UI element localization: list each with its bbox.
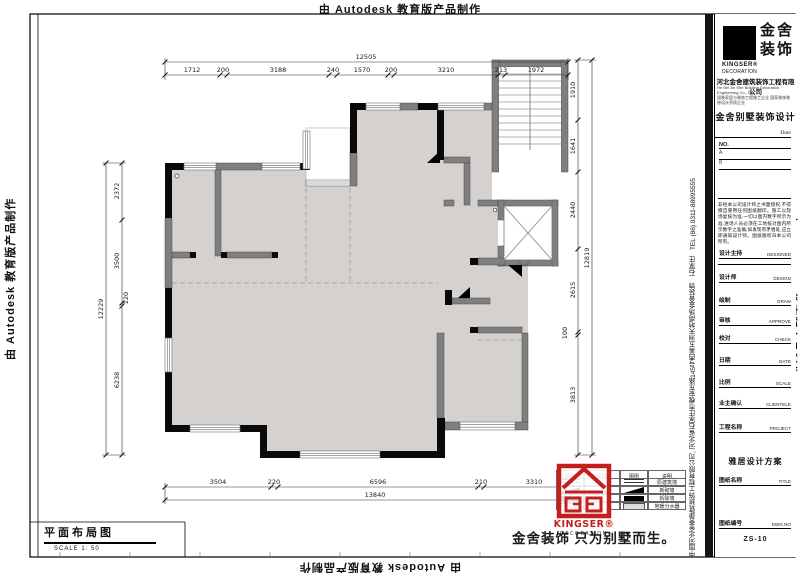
- cutout-void: [306, 128, 350, 186]
- row-designer: 设计师 DESIGN: [719, 271, 791, 283]
- side-address-strip: 中国河北金舍建筑装饰工程有限公司, 河北省石家庄市槐安东路145号西美五洲天地商…: [686, 14, 702, 557]
- row-en: DATE: [779, 359, 791, 364]
- date-label: Date: [715, 130, 791, 138]
- svg-text:200: 200: [385, 66, 397, 74]
- svg-text:1570: 1570: [354, 66, 371, 74]
- svg-text:1641: 1641: [569, 138, 577, 155]
- row-date: 日期 DATE: [719, 354, 791, 366]
- svg-text:3188: 3188: [270, 66, 287, 74]
- titleblock: 金舍 装饰 KINGSER® DECORATION 河北金舍建筑装饰工程有限公司…: [714, 14, 796, 557]
- svg-text:200: 200: [217, 66, 229, 74]
- row-title: 图纸名称 TITLE: [719, 474, 791, 486]
- svg-text:120: 120: [122, 292, 130, 304]
- logo-cn-line2: 装饰: [760, 41, 794, 60]
- row-label: 业主确认: [719, 398, 742, 407]
- logo-cn-line1: 金舍: [760, 22, 794, 41]
- row-en: TITLE: [778, 479, 791, 484]
- plan-title-underline: [44, 542, 156, 544]
- company-details: He Bei Jin She Building Decoration Engin…: [717, 85, 793, 105]
- row-label: 比例: [719, 377, 731, 386]
- svg-text:220: 220: [268, 478, 280, 486]
- legend-label: 新砌墙: [648, 486, 686, 494]
- svg-text:210: 210: [475, 478, 487, 486]
- company-name-en: He Bei Jin She Building Decoration Engin…: [717, 85, 793, 95]
- no-row: A: [719, 150, 791, 160]
- svg-text:3500: 3500: [113, 253, 121, 270]
- row-label: 设计主持: [719, 248, 742, 257]
- logo-brand-sub: DECORATION: [722, 69, 757, 75]
- svg-text:2372: 2372: [113, 183, 121, 200]
- row-check: 校对 CHECK: [719, 332, 791, 344]
- row-en: APPROVE: [769, 319, 791, 324]
- seal-brand: KINGSER®: [554, 519, 615, 530]
- row-en: SCALE: [776, 381, 791, 386]
- svg-text:12229: 12229: [97, 299, 105, 320]
- row-designed: 设计主持 DESIGNED: [719, 247, 791, 259]
- legend-symbol: [620, 502, 648, 510]
- project-type: 金舍别墅装饰设计: [715, 110, 796, 123]
- no-row: B: [719, 160, 791, 170]
- logo-wordmark: 金舍 装饰: [760, 22, 794, 60]
- staircase: [499, 67, 561, 172]
- svg-text:240: 240: [327, 66, 339, 74]
- row-label: 工程名称: [719, 422, 742, 431]
- dwg-number: ZS-10: [715, 536, 796, 543]
- seal-brand-sub: DECORATION: [560, 531, 608, 537]
- svg-text:13840: 13840: [365, 491, 386, 499]
- row-label: 审核: [719, 315, 731, 324]
- row-draw: 绘制 DRAW: [719, 294, 791, 306]
- row-label: 图纸名称: [719, 475, 742, 484]
- row-en: PROJECT: [770, 426, 791, 431]
- row-en: DESIGN: [773, 276, 791, 281]
- legend-symbol: [620, 486, 648, 494]
- svg-text:6238: 6238: [113, 372, 121, 389]
- logo-brand: KINGSER®: [722, 62, 758, 68]
- svg-text:213: 213: [495, 66, 507, 74]
- row-scale: 比例 SCALE: [719, 376, 791, 388]
- svg-text:100: 100: [561, 327, 569, 339]
- svg-text:3813: 3813: [569, 387, 577, 404]
- row-label: 图纸编号: [719, 518, 742, 527]
- logo-square-icon: [723, 26, 756, 60]
- row-project: 工程名称 PROJECT: [719, 421, 791, 433]
- no-label: NO.: [719, 142, 791, 149]
- row-label: 校对: [719, 333, 731, 342]
- row-en: DESIGNED: [767, 252, 791, 257]
- legend-label: 地暖分水器: [648, 502, 686, 510]
- side-address-text: 中国河北金舍建筑装饰工程有限公司, 河北省石家庄市槐安东路145号西美五洲天地商…: [689, 14, 699, 557]
- svg-text:3504: 3504: [210, 478, 227, 486]
- plan-title-box: 平面布局图 SCALE 1: 50: [44, 524, 156, 552]
- svg-text:3310: 3310: [526, 478, 543, 486]
- row-clientele: 业主确认 CLIENTELE: [719, 397, 791, 409]
- row-en: DWG.NO: [772, 522, 791, 527]
- row-label: 绘制: [719, 295, 731, 304]
- svg-text:1910: 1910: [569, 82, 577, 99]
- row-en: DRAW: [777, 299, 791, 304]
- elevator-shaft: [504, 206, 552, 260]
- legend-label: 拆除墙: [648, 494, 686, 502]
- company-qualification: 固装家居与装饰工程施工企业 国家装饰装修设计资质企业: [717, 95, 793, 105]
- svg-text:1712: 1712: [184, 66, 201, 74]
- svg-text:12505: 12505: [356, 53, 377, 61]
- legend-symbol: [620, 494, 648, 502]
- row-dwg-no: 图纸编号 DWG.NO: [719, 517, 791, 529]
- svg-text:2440: 2440: [569, 202, 577, 219]
- titleblock-bar: [705, 14, 713, 557]
- svg-text:3210: 3210: [438, 66, 455, 74]
- project-value: 雅居设计方案: [715, 456, 796, 467]
- row-label: 设计师: [719, 272, 736, 281]
- kingser-seal: KINGSER® DECORATION: [552, 459, 616, 544]
- drawing-sheet: 由 Autodesk 教育版产品制作 由 Autodesk 教育版产品制作 由 …: [0, 0, 800, 573]
- svg-text:2615: 2615: [569, 282, 577, 299]
- svg-text:1972: 1972: [528, 66, 545, 74]
- row-approve: 审核 APPROVE: [719, 314, 791, 326]
- legend-label: 原建筑墙: [648, 478, 686, 486]
- legend-symbol: [620, 478, 648, 486]
- plan-title: 平面布局图: [44, 524, 156, 540]
- svg-text:6596: 6596: [370, 478, 387, 486]
- plan-scale: SCALE 1: 50: [54, 546, 156, 552]
- row-label: 日期: [719, 355, 731, 364]
- row-en: CLIENTELE: [766, 402, 791, 407]
- svg-text:12819: 12819: [583, 248, 591, 269]
- row-en: CHECK: [775, 337, 791, 342]
